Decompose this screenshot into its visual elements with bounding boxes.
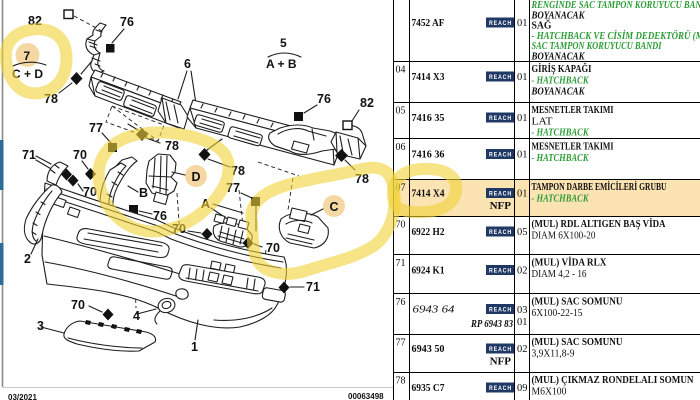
svg-text:04: 04	[396, 65, 406, 76]
svg-text:7416 36: 7416 36	[412, 149, 445, 161]
svg-text:76: 76	[317, 92, 331, 106]
svg-text:MESNETLER TAKIMI: MESNETLER TAKIMI	[532, 104, 614, 116]
svg-text:09: 09	[517, 383, 528, 394]
svg-text:- HATCHBACK: - HATCHBACK	[532, 152, 590, 164]
svg-text:70: 70	[266, 241, 280, 255]
svg-text:3,9X11,8-9: 3,9X11,8-9	[532, 347, 575, 359]
svg-text:70: 70	[73, 148, 87, 162]
svg-text:M6X100: M6X100	[532, 385, 567, 397]
svg-text:(MUL) ÇIKMAZ RONDELALI SOMUN: (MUL) ÇIKMAZ RONDELALI SOMUN	[532, 374, 694, 386]
svg-text:7: 7	[24, 49, 31, 63]
svg-text:REACH: REACH	[489, 385, 512, 392]
svg-text:1: 1	[191, 340, 198, 354]
svg-text:71: 71	[22, 148, 36, 162]
svg-text:01: 01	[517, 72, 528, 83]
svg-text:01: 01	[517, 317, 528, 328]
svg-text:78: 78	[396, 376, 406, 387]
svg-text:D: D	[192, 170, 201, 184]
svg-text:LAT: LAT	[532, 115, 553, 127]
svg-text:00063498: 00063498	[348, 392, 384, 400]
svg-text:2: 2	[24, 252, 31, 266]
svg-text:GİRİŞ KAPAĞI: GİRİŞ KAPAĞI	[532, 62, 592, 75]
svg-text:7452 AF: 7452 AF	[412, 17, 445, 29]
svg-text:A + B: A + B	[266, 57, 297, 71]
svg-text:6924 K1: 6924 K1	[412, 265, 445, 277]
svg-text:MESNETLER TAKIMI: MESNETLER TAKIMI	[532, 141, 614, 153]
svg-text:70: 70	[71, 298, 85, 312]
svg-text:REACH: REACH	[489, 152, 512, 159]
svg-text:REACH: REACH	[489, 20, 512, 27]
svg-text:6X100-22-15: 6X100-22-15	[532, 307, 583, 319]
svg-text:02: 02	[517, 266, 528, 277]
svg-text:01: 01	[517, 150, 528, 161]
svg-text:78: 78	[165, 139, 179, 153]
svg-text:3: 3	[37, 319, 44, 333]
svg-text:01: 01	[517, 113, 528, 124]
svg-text:6943 50: 6943 50	[412, 343, 445, 355]
svg-text:6935 C7: 6935 C7	[412, 382, 445, 394]
svg-text:(MUL) SAC SOMUNU: (MUL) SAC SOMUNU	[532, 296, 623, 308]
svg-text:01: 01	[517, 189, 528, 200]
svg-text:TAMPON DARBE EMİCİLERİ GRUBU: TAMPON DARBE EMİCİLERİ GRUBU	[532, 181, 667, 193]
svg-text:06: 06	[396, 142, 406, 153]
svg-text:6922 H2: 6922 H2	[412, 226, 445, 238]
svg-text:77: 77	[396, 338, 406, 349]
svg-text:5: 5	[280, 36, 287, 50]
svg-text:03: 03	[517, 305, 528, 316]
svg-text:NFP: NFP	[490, 356, 512, 368]
svg-text:7416 35: 7416 35	[412, 112, 445, 124]
svg-text:05: 05	[396, 106, 406, 117]
svg-text:REACH: REACH	[489, 115, 512, 122]
svg-text:7414 X4: 7414 X4	[412, 188, 445, 200]
svg-text:71: 71	[306, 280, 320, 294]
svg-text:- HATCHBACK: - HATCHBACK	[532, 127, 590, 139]
svg-text:RP 6943 83: RP 6943 83	[470, 318, 513, 330]
svg-text:6943 64: 6943 64	[413, 304, 456, 316]
svg-text:REACH: REACH	[489, 307, 512, 314]
svg-text:REACH: REACH	[489, 74, 512, 81]
svg-text:B: B	[139, 186, 148, 200]
svg-text:- HATCHBACK: - HATCHBACK	[532, 192, 590, 204]
svg-text:REACH: REACH	[489, 346, 512, 353]
svg-text:02: 02	[517, 344, 528, 355]
svg-text:DIAM 6X100-20: DIAM 6X100-20	[532, 229, 596, 241]
svg-text:6: 6	[184, 57, 191, 71]
svg-text:REACH: REACH	[489, 268, 512, 275]
svg-text:76: 76	[396, 297, 406, 308]
svg-text:01: 01	[517, 18, 528, 29]
svg-text:77: 77	[89, 121, 103, 135]
svg-text:7414 X3: 7414 X3	[412, 71, 445, 83]
svg-text:BOYANACAK: BOYANACAK	[531, 51, 585, 63]
svg-text:NFP: NFP	[490, 200, 512, 212]
svg-text:(MUL) SAC SOMUNU: (MUL) SAC SOMUNU	[532, 336, 623, 348]
svg-text:(MUL) RDL ALTIGEN BAŞ VİDA: (MUL) RDL ALTIGEN BAŞ VİDA	[532, 218, 666, 230]
svg-text:03/2021: 03/2021	[8, 393, 37, 400]
svg-text:4: 4	[133, 309, 140, 323]
svg-text:82: 82	[360, 96, 374, 110]
svg-text:71: 71	[396, 258, 406, 269]
svg-text:REACH: REACH	[489, 229, 512, 236]
svg-text:76: 76	[120, 15, 134, 29]
svg-text:C: C	[330, 200, 339, 214]
svg-text:BOYANACAK: BOYANACAK	[531, 86, 585, 98]
svg-text:(MUL) VİDA RLX: (MUL) VİDA RLX	[532, 257, 607, 269]
svg-text:REACH: REACH	[489, 191, 512, 198]
svg-text:DIAM 4,2 - 16: DIAM 4,2 - 16	[532, 268, 587, 280]
svg-text:05: 05	[517, 227, 528, 238]
svg-text:- HATCHBACK: - HATCHBACK	[532, 74, 590, 86]
